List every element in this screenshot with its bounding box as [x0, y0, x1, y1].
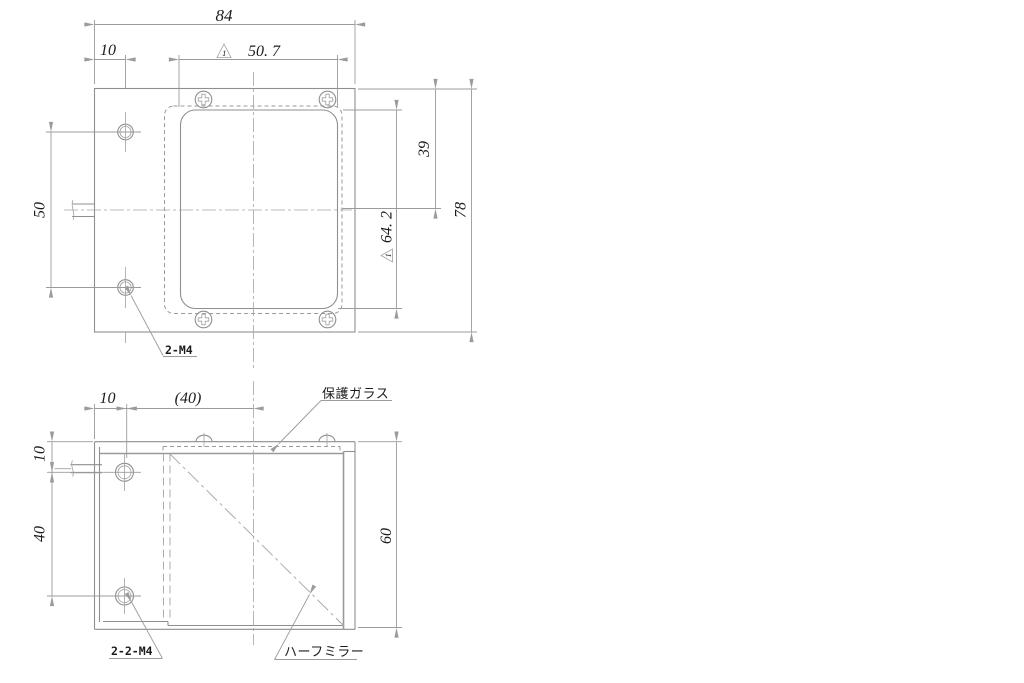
glass-label-text: 保護ガラス — [322, 386, 389, 402]
paper-background — [0, 0, 1024, 683]
dim-40-ref-text: (40) — [175, 390, 202, 407]
thread-label-text: 2-2-M4 — [111, 644, 153, 658]
cad-drawing: 84 10 1 50. 7 39 — [0, 0, 1024, 683]
dim-84-text: 84 — [216, 6, 234, 25]
dim-10-top-text: 10 — [100, 390, 116, 407]
dim-50-text: 50 — [32, 202, 49, 218]
drawing-canvas: 84 10 1 50. 7 39 — [0, 0, 1024, 683]
dim-64-2-text: 64. 2 — [379, 211, 396, 243]
mirror-label-text: ハーフミラー — [284, 645, 364, 660]
dim-50-7-text: 50. 7 — [248, 43, 281, 60]
finish-mark-number: 1 — [383, 253, 393, 257]
dim-10-text: 10 — [100, 42, 116, 59]
thread-label-text: 2-M4 — [165, 343, 193, 357]
dim-39-text: 39 — [416, 141, 433, 158]
dim-40-left-text: 40 — [32, 526, 49, 542]
dim-78-text: 78 — [453, 202, 470, 218]
dim-10-left-text: 10 — [32, 446, 49, 462]
dim-60-text: 60 — [378, 528, 395, 544]
finish-mark-number: 1 — [222, 48, 226, 58]
